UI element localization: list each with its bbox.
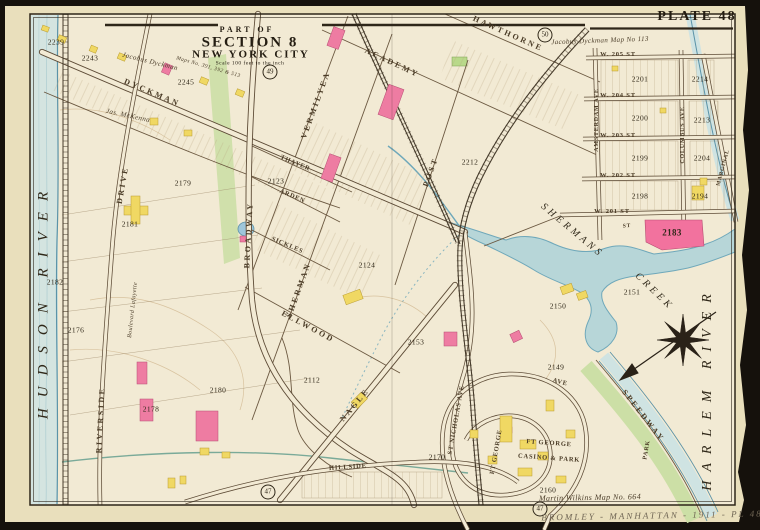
block-label-2201: 2201 bbox=[632, 75, 649, 83]
block-label-2123: 2123 bbox=[268, 177, 285, 185]
atlas-plate-scan: PLATE 48 PART OF SECTION 8 NEW YORK CITY… bbox=[0, 0, 760, 530]
street-label-ellwood: ELLWOOD bbox=[280, 310, 336, 345]
street-label-arden: ARDEN bbox=[278, 189, 306, 206]
street-label-ave: AVE bbox=[552, 378, 568, 388]
block-label-2112: 2112 bbox=[304, 376, 320, 384]
street-label-st-nicholas: ST NICHOLAS AVE bbox=[448, 385, 467, 455]
street-label-columbus: COLUMBUS AVE bbox=[680, 106, 686, 163]
plate-number: PLATE 48 bbox=[657, 10, 736, 24]
block-label-2153: 2153 bbox=[408, 338, 425, 346]
street-label-vermilyea: VERMILYEA bbox=[300, 70, 332, 140]
street-label-amsterdam: AMSTERDAM AVE bbox=[594, 88, 600, 151]
block-label-2150: 2150 bbox=[550, 302, 567, 310]
block-label-2170: 2170 bbox=[429, 453, 446, 461]
block-label-2151: 2151 bbox=[624, 288, 641, 296]
block-label-2179: 2179 bbox=[175, 179, 192, 187]
note-martin-wilkins: Martin Wilkins Map No. 664 bbox=[539, 493, 641, 503]
block-label-2243: 2243 bbox=[82, 54, 99, 62]
street-label-hawthorne: HAWTHORNE bbox=[472, 15, 545, 53]
place-label-casino-park: CASINO & PARK bbox=[518, 454, 581, 465]
street-label-w202: W. 202 ST bbox=[600, 173, 636, 180]
block-label-2212: 2212 bbox=[462, 158, 479, 166]
street-label-w203: W. 203 ST bbox=[600, 133, 636, 140]
block-label-2199: 2199 bbox=[632, 154, 649, 162]
block-label-2239: 2239 bbox=[48, 38, 65, 46]
street-label-sherman: SHERMAN bbox=[285, 261, 312, 319]
street-label-academy: ACADEMY bbox=[363, 47, 420, 79]
block-label-2178: 2178 bbox=[143, 405, 160, 413]
note-jas-mckenna: Jas. McKenna bbox=[105, 108, 150, 124]
block-label-2194: 2194 bbox=[692, 192, 709, 200]
title-city: NEW YORK CITY bbox=[192, 50, 310, 61]
hudson-river-label: HUDSON RIVER bbox=[37, 181, 52, 419]
note-boulevard-lafayette: Boulevard Lafayette bbox=[127, 282, 139, 339]
block-label-2204: 2204 bbox=[694, 154, 711, 162]
block-label-2245: 2245 bbox=[178, 78, 195, 86]
place-label-park: PARK bbox=[642, 440, 651, 461]
block-label-2198: 2198 bbox=[632, 192, 649, 200]
block-label-2176: 2176 bbox=[68, 326, 85, 334]
place-label-ft-george: FT GEORGE bbox=[526, 439, 572, 449]
harlem-river-label: HARLEM RIVER bbox=[701, 285, 715, 491]
street-label-dyckman: DYCKMAN bbox=[123, 78, 182, 109]
street-label-riverside: RIVERSIDE bbox=[95, 386, 106, 453]
street-label-drive: DRIVE bbox=[116, 165, 131, 204]
street-label-ft-george: FT GEORGE bbox=[490, 429, 504, 475]
street-label-nagle: NAGLE bbox=[339, 387, 371, 424]
street-label-speedway: SPEEDWAY bbox=[620, 388, 666, 443]
street-label-hillside: HILLSIDE bbox=[329, 463, 367, 472]
label-layer: PLATE 48 PART OF SECTION 8 NEW YORK CITY… bbox=[0, 0, 760, 530]
pencil-annotation: BROMLEY - MANHATTAN - 1911 - PL 48 bbox=[541, 510, 760, 523]
block-label-2213: 2213 bbox=[694, 116, 711, 124]
plate-ref-49: 49 bbox=[263, 65, 278, 80]
block-label-2181: 2181 bbox=[122, 220, 139, 228]
block-label-2124: 2124 bbox=[359, 261, 376, 269]
block-label-2214: 2214 bbox=[692, 75, 709, 83]
plate-ref-47-left: 47 bbox=[261, 485, 276, 500]
note-map-113: Jacobus Dyckman Map No 113 bbox=[551, 36, 649, 46]
street-label-w205: W. 205 ST bbox=[600, 52, 636, 59]
block-label-2182: 2182 bbox=[47, 278, 64, 286]
street-label-st: ST bbox=[623, 224, 632, 230]
block-label-2200: 2200 bbox=[632, 114, 649, 122]
street-label-w201: W. 201 ST bbox=[594, 209, 630, 216]
street-label-broadway: BROADWAY bbox=[243, 201, 254, 268]
block-label-2180: 2180 bbox=[210, 386, 227, 394]
note-jacobus-dyckman: Jacobus Dyckman bbox=[121, 52, 178, 73]
street-label-sickles: SICKLES bbox=[270, 236, 304, 255]
title-part-of: PART OF bbox=[220, 26, 275, 34]
street-label-w204: W. 204 ST bbox=[600, 93, 636, 100]
street-label-thayer: THAYER bbox=[279, 155, 311, 173]
block-label-2183: 2183 bbox=[662, 229, 682, 238]
street-label-marginal: MARGINAL bbox=[716, 149, 731, 187]
block-label-2149: 2149 bbox=[548, 363, 565, 371]
street-label-post: POST bbox=[422, 156, 440, 188]
